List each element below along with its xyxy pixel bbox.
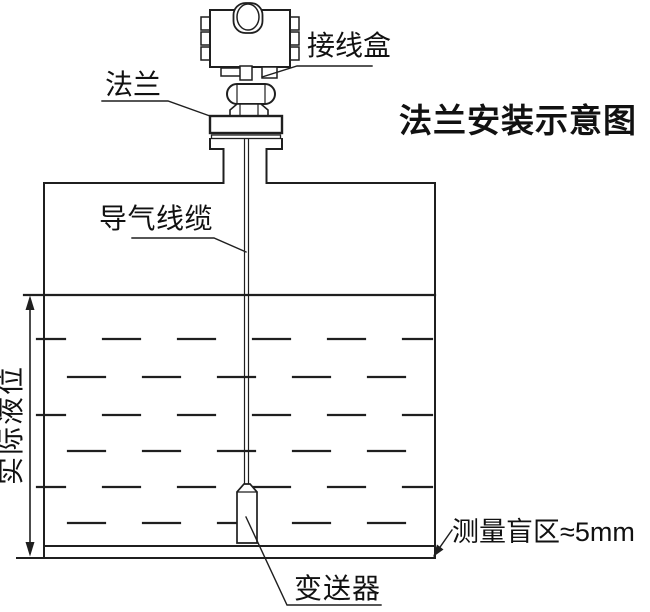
flange-label: 法兰: [105, 71, 161, 99]
diagram-title: 法兰安装示意图: [399, 104, 637, 137]
flange-assembly: [210, 116, 282, 183]
air-guide-cable-label: 导气线缆: [99, 205, 213, 233]
flange-leader: [102, 101, 210, 116]
dome-glass: [237, 4, 259, 30]
transmitter-label: 变送器: [294, 575, 381, 603]
tank: [17, 183, 435, 558]
air-guide-cable-line: [245, 139, 249, 484]
process-connection: [227, 84, 275, 104]
liquid-dashes: [37, 339, 432, 523]
liquid: [24, 295, 435, 523]
mounting-nozzle: [210, 139, 282, 183]
actual-liquid-level-label: 实际液位: [0, 355, 29, 495]
blind-zone-label: 测量盲区≈5mm: [452, 519, 635, 546]
flange-plate: [210, 116, 282, 133]
flange-gasket: [212, 135, 281, 139]
flange-installation-diagram: 法兰安装示意图 接线盒 法兰 导气线缆 实际液位 测量盲区≈5mm 变送器: [0, 0, 650, 612]
probe-assembly: [237, 139, 257, 543]
air-guide-cable-leader: [132, 238, 246, 252]
gland-block: [240, 66, 252, 80]
junction-box-label: 接线盒: [307, 32, 391, 60]
leader-lines: [102, 66, 452, 605]
transmitter-head: [201, 3, 299, 118]
